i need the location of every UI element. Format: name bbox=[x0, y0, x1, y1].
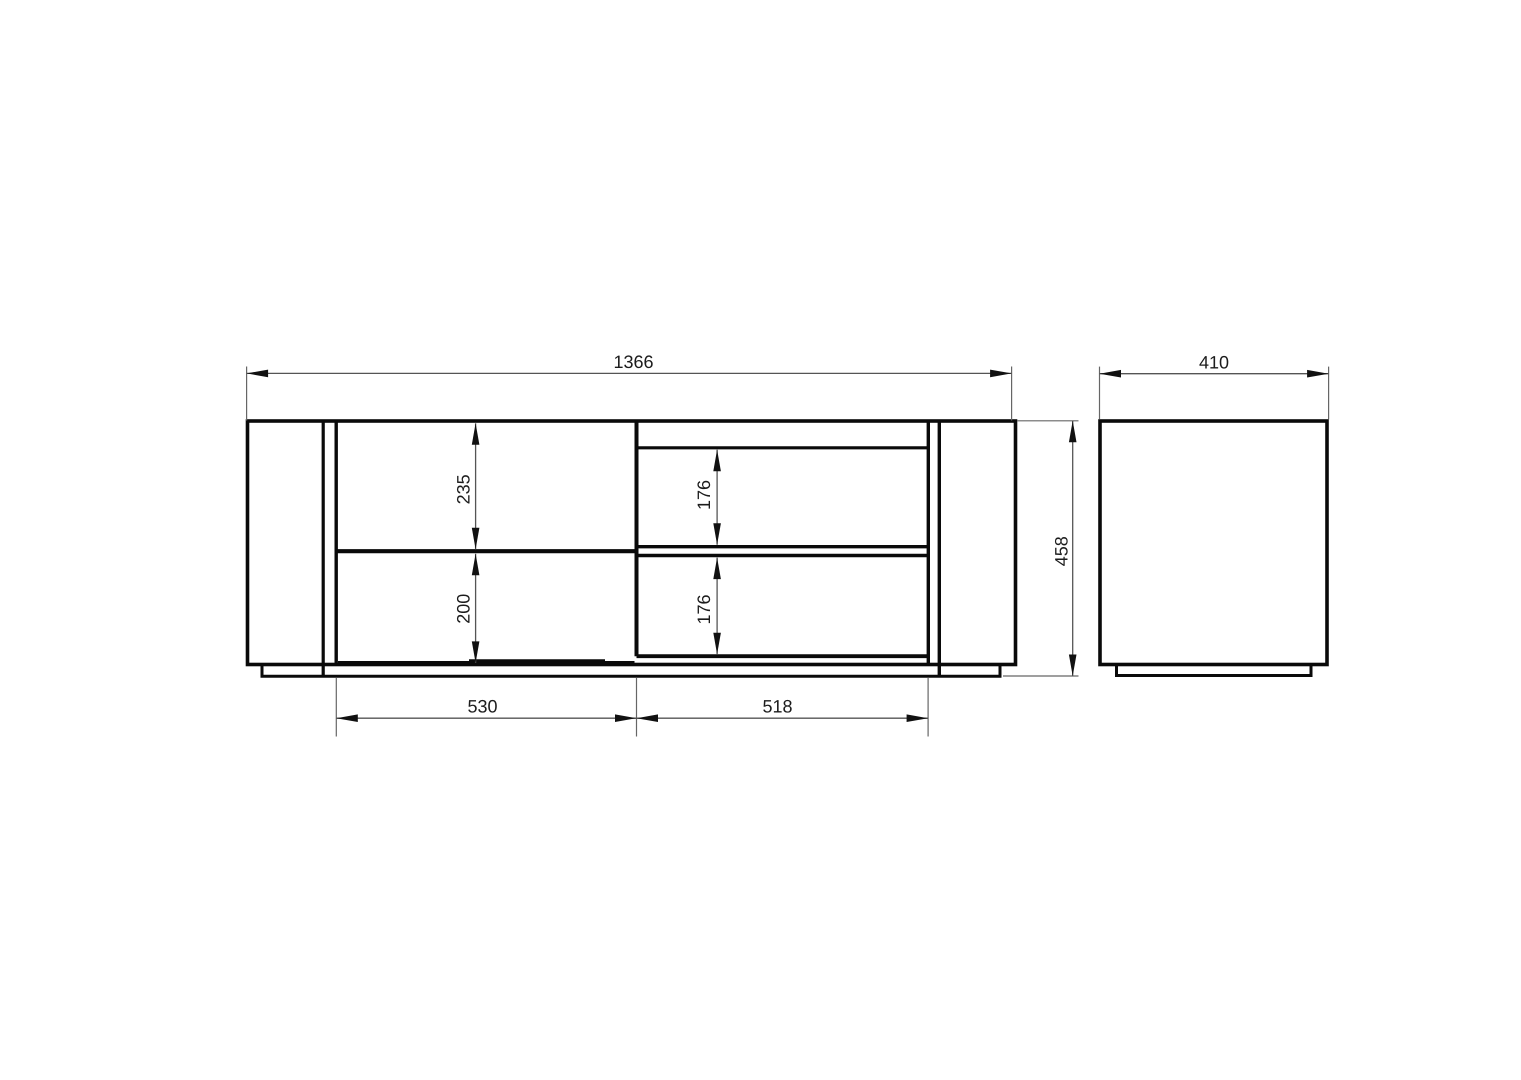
svg-text:1366: 1366 bbox=[613, 352, 653, 372]
svg-text:176: 176 bbox=[694, 480, 714, 510]
svg-text:530: 530 bbox=[467, 697, 497, 717]
svg-text:200: 200 bbox=[454, 594, 474, 624]
svg-text:518: 518 bbox=[762, 697, 792, 717]
svg-text:458: 458 bbox=[1052, 536, 1072, 566]
svg-text:410: 410 bbox=[1199, 352, 1229, 372]
svg-text:176: 176 bbox=[694, 594, 714, 624]
svg-text:235: 235 bbox=[454, 474, 474, 504]
